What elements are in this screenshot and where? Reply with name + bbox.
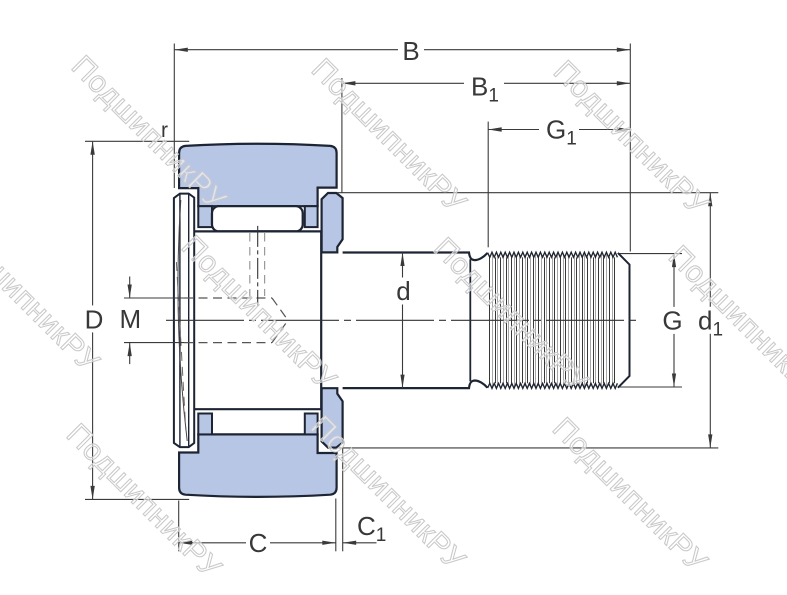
svg-text:C: C: [249, 528, 268, 558]
svg-text:d: d: [396, 276, 410, 306]
svg-text:B: B: [402, 36, 419, 66]
svg-text:G: G: [662, 305, 682, 335]
svg-text:M: M: [119, 304, 141, 334]
svg-text:D: D: [85, 304, 104, 334]
